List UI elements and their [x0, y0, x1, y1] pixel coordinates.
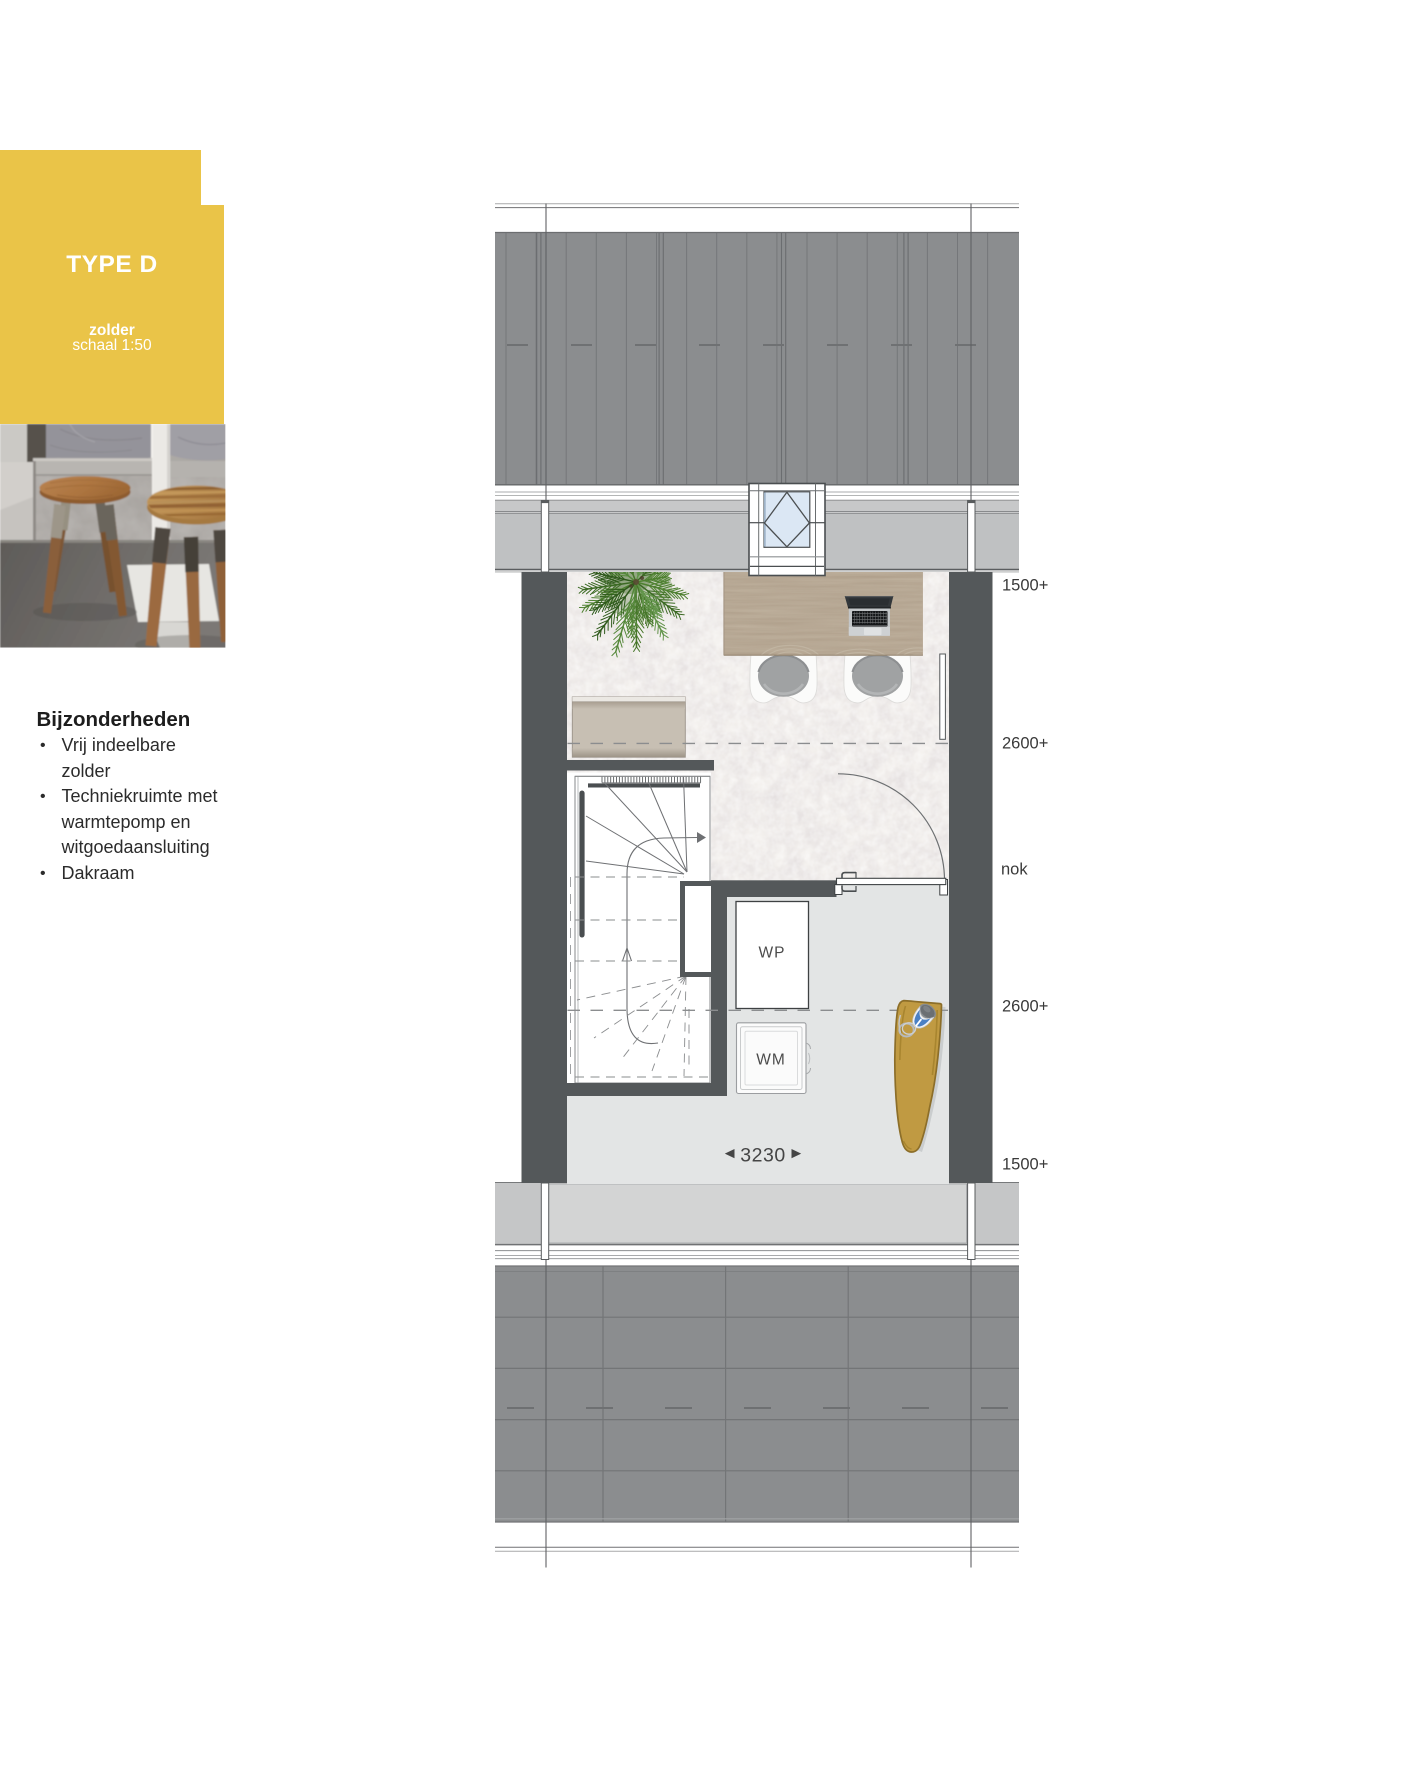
svg-text:1500+: 1500+	[1002, 577, 1048, 595]
svg-text:WP: WP	[759, 945, 786, 962]
svg-text:2600+: 2600+	[1002, 998, 1048, 1016]
svg-text:3230: 3230	[740, 1145, 785, 1167]
svg-text:nok: nok	[1001, 861, 1028, 879]
svg-text:WM: WM	[756, 1052, 786, 1069]
svg-text:2600+: 2600+	[1002, 735, 1048, 753]
svg-text:1500+: 1500+	[1002, 1156, 1048, 1174]
